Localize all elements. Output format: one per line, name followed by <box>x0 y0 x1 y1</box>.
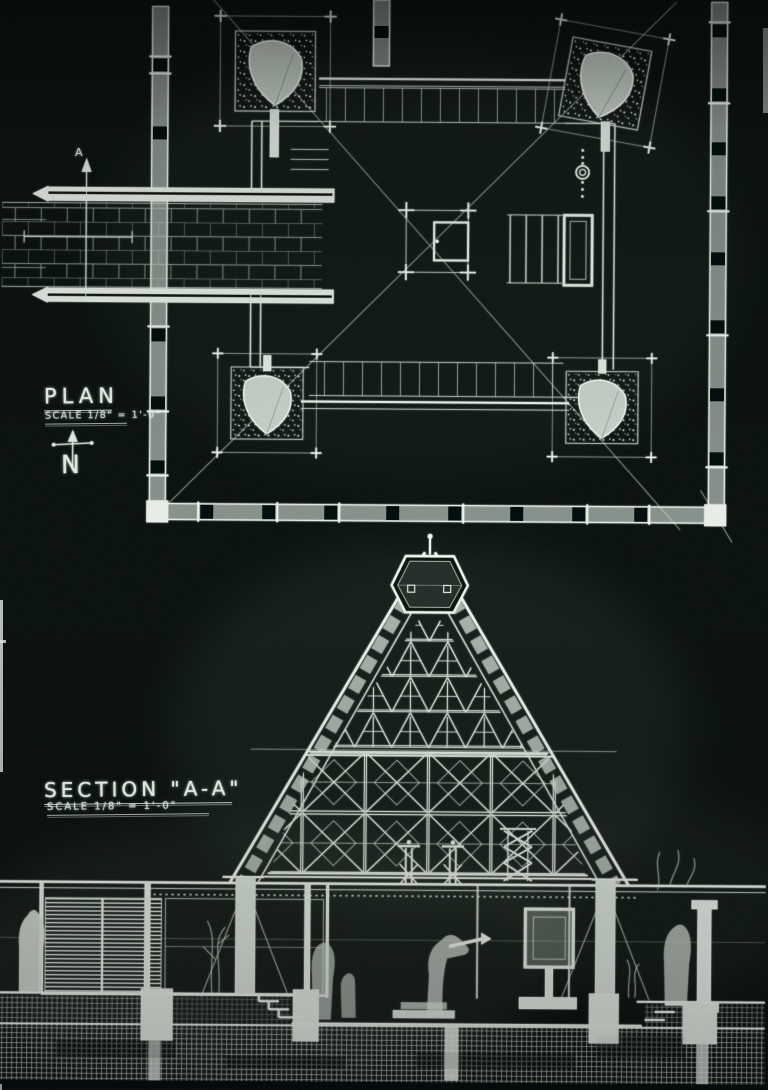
blueprint-photo: A PLAN SCALE 1/8" = 1'-0" N SECTION "A-A… <box>0 0 768 1090</box>
plan-title: PLAN <box>44 384 119 412</box>
blueprint-drawing <box>0 0 768 1090</box>
section-cut-label: A <box>75 146 83 159</box>
section-scale-label: SCALE 1/8" = 1'-0" <box>47 800 209 816</box>
film-grain <box>0 0 768 1090</box>
plan-scale-label: SCALE 1/8" = 1'-0" <box>45 409 162 424</box>
north-label: N <box>61 450 80 479</box>
